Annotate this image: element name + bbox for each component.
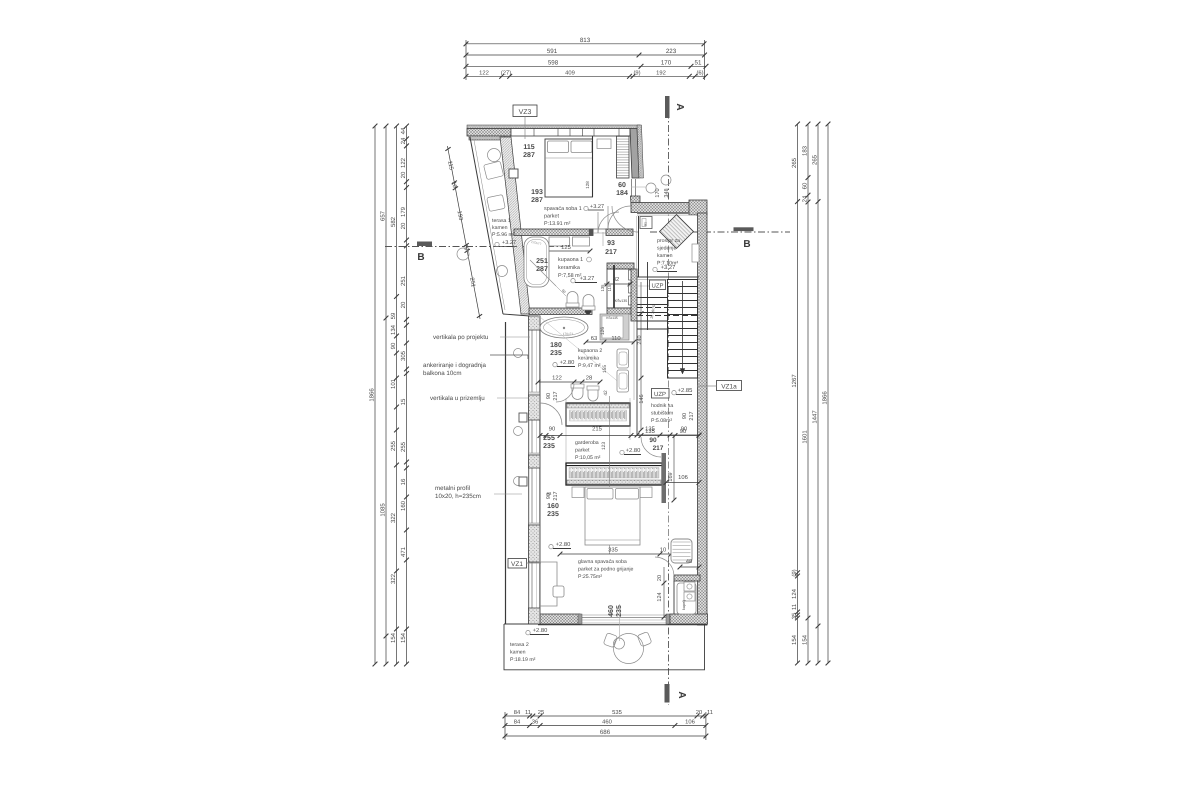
svg-text:63: 63 [591,335,597,342]
svg-text:B1: B1 [644,222,648,226]
svg-text:60: 60 [618,182,626,189]
svg-text:spavaća soba 1: spavaća soba 1 [544,206,582,212]
svg-text:90: 90 [681,426,687,433]
svg-text:126: 126 [600,327,606,335]
svg-text:106: 106 [685,719,695,726]
svg-text:1601: 1601 [801,430,808,444]
svg-text:335: 335 [608,547,618,554]
svg-text:VZ1a: VZ1a [721,383,737,390]
svg-text:+2.80: +2.80 [533,627,548,634]
svg-text:59: 59 [390,312,397,319]
svg-text:255: 255 [390,440,397,451]
svg-text:217: 217 [653,445,664,452]
svg-text:1447: 1447 [811,410,818,424]
svg-text:20: 20 [400,171,407,178]
svg-text:154: 154 [791,634,798,645]
svg-text:+2.80: +2.80 [560,359,575,366]
svg-text:parket: parket [575,448,590,454]
svg-text:184: 184 [616,190,628,197]
svg-text:20: 20 [400,301,407,308]
svg-text:UZP: UZP [652,282,664,289]
svg-text:124: 124 [657,592,663,601]
svg-text:217: 217 [553,491,559,500]
svg-text:251: 251 [400,275,407,286]
svg-text:471: 471 [400,546,407,557]
svg-text:kamen: kamen [492,225,508,231]
svg-text:51: 51 [695,60,702,67]
svg-text:122: 122 [400,157,407,168]
svg-text:kupaona 2: kupaona 2 [578,348,602,354]
svg-text:P:9,47 m²: P:9,47 m² [578,363,601,369]
svg-text:KŠv135: KŠv135 [615,298,628,303]
svg-text:124: 124 [791,588,798,599]
svg-text:+2.80: +2.80 [626,447,641,454]
svg-text:balkona 10cm: balkona 10cm [423,370,462,377]
svg-text:+2.80: +2.80 [556,541,571,548]
svg-text:metalni profil: metalni profil [435,485,470,492]
svg-text:hodnik sa: hodnik sa [651,403,673,409]
svg-text:409: 409 [565,70,575,77]
svg-text:154: 154 [390,632,397,643]
svg-text:ankeriranje i dogradnja: ankeriranje i dogradnja [423,362,487,369]
svg-text:B: B [417,252,424,263]
svg-text:192: 192 [656,70,666,77]
svg-text:322: 322 [390,512,397,523]
svg-text:235: 235 [547,511,559,518]
svg-text:115: 115 [523,144,534,151]
svg-text:90: 90 [390,342,397,349]
svg-text:90: 90 [546,393,552,399]
svg-text:160: 160 [547,503,559,510]
svg-text:217: 217 [553,391,559,400]
svg-text:A: A [674,103,685,110]
svg-text:(9): (9) [633,70,640,77]
svg-text:90: 90 [649,437,657,444]
svg-text:10: 10 [660,547,666,554]
svg-text:VZ1: VZ1 [511,561,523,568]
svg-text:44: 44 [400,127,407,134]
svg-text:+3.27: +3.27 [502,240,516,246]
svg-text:24: 24 [801,195,808,202]
svg-text:348: 348 [664,188,670,197]
svg-text:179: 179 [400,206,407,217]
svg-text:P:5.08m²: P:5.08m² [651,418,672,424]
svg-text:154: 154 [801,634,808,645]
svg-text:255: 255 [543,435,555,442]
svg-text:kamen: kamen [657,253,673,259]
svg-text:+3.27: +3.27 [580,275,595,282]
svg-text:460: 460 [608,605,615,617]
svg-text:170x71: 170x71 [563,332,574,336]
svg-text:+2.85: +2.85 [678,387,693,394]
svg-text:1866: 1866 [368,388,375,402]
svg-text:84: 84 [514,709,521,716]
svg-text:251: 251 [536,258,548,265]
svg-text:terasa 1: terasa 1 [492,218,511,224]
svg-text:keramika: keramika [558,265,580,271]
svg-text:10: 10 [462,243,470,251]
svg-text:217: 217 [689,411,695,420]
svg-text:kamen: kamen [510,650,526,656]
svg-text:terasa 2: terasa 2 [510,642,529,648]
svg-text:11: 11 [791,603,798,610]
svg-text:+3.27: +3.27 [661,264,676,271]
svg-text:20: 20 [696,709,702,716]
svg-text:193: 193 [531,189,543,196]
svg-text:93: 93 [547,491,552,496]
svg-text:48: 48 [686,559,692,565]
svg-text:vertikala u prizemlju: vertikala u prizemlju [430,395,485,402]
svg-text:90: 90 [549,426,555,433]
svg-text:535: 535 [612,709,622,716]
svg-text:223: 223 [666,48,677,55]
svg-text:160: 160 [400,500,407,511]
svg-text:598: 598 [548,60,559,67]
svg-text:123: 123 [601,442,607,450]
svg-text:11: 11 [525,710,531,716]
svg-text:169: 169 [668,472,674,481]
svg-text:287: 287 [523,152,535,159]
svg-text:134: 134 [390,324,397,335]
svg-text:235: 235 [543,443,555,450]
svg-text:P:10,05 m²: P:10,05 m² [575,455,601,461]
svg-text:UZP: UZP [654,391,666,398]
svg-text:265: 265 [811,154,818,165]
svg-text:240: 240 [637,335,643,344]
svg-text:16: 16 [400,478,407,485]
svg-text:kupaona 1: kupaona 1 [558,257,583,263]
svg-text:P:25.75m²: P:25.75m² [578,574,602,580]
svg-text:255: 255 [400,441,407,452]
svg-text:1267: 1267 [791,374,798,388]
svg-text:VZ3: VZ3 [519,109,532,116]
svg-text:(27): (27) [501,70,511,77]
svg-text:101: 101 [390,378,397,389]
svg-text:20: 20 [400,222,407,229]
svg-text:stubištem: stubištem [651,411,673,417]
svg-text:glavna spavaća soba: glavna spavaća soba [578,559,627,565]
svg-text:154: 154 [400,632,407,643]
svg-text:110: 110 [611,335,620,342]
svg-text:84: 84 [514,719,521,726]
svg-text:657: 657 [379,210,386,221]
svg-text:170: 170 [661,60,672,67]
svg-text:B: B [743,239,750,250]
svg-text:93: 93 [607,240,615,247]
svg-text:106: 106 [678,474,688,481]
svg-text:28: 28 [586,375,592,382]
svg-text:128: 128 [585,181,590,189]
svg-text:183: 183 [801,145,808,156]
svg-text:10: 10 [450,181,458,189]
svg-text:115: 115 [607,284,612,291]
svg-text:265: 265 [791,157,798,168]
svg-text:P:18.19 m²: P:18.19 m² [510,657,536,663]
svg-text:parket: parket [544,214,559,220]
svg-text:11: 11 [707,710,713,716]
svg-text:135: 135 [600,284,605,292]
svg-text:1085: 1085 [379,503,386,517]
svg-text:P:7,58 m²: P:7,58 m² [558,273,582,279]
svg-text:305: 305 [400,350,407,361]
svg-text:90: 90 [682,413,688,419]
svg-text:kupelj: kupelj [682,600,686,610]
svg-text:60: 60 [801,182,808,189]
svg-text:582: 582 [390,216,397,227]
svg-text:42: 42 [603,390,609,396]
svg-text:P:13.91 m²: P:13.91 m² [544,221,571,227]
svg-text:322: 322 [390,573,397,584]
svg-text:KŠx135: KŠx135 [606,316,618,320]
svg-text:125: 125 [561,244,571,251]
svg-text:180: 180 [550,342,562,349]
svg-text:217: 217 [605,249,617,256]
svg-text:155: 155 [602,365,608,373]
svg-text:591: 591 [547,48,558,55]
svg-text:146: 146 [639,394,645,403]
svg-text:35: 35 [791,612,798,619]
svg-text:686: 686 [600,729,611,736]
svg-text:(6): (6) [696,70,703,77]
svg-text:215: 215 [592,426,602,433]
svg-text:82: 82 [613,276,619,283]
svg-text:24: 24 [400,137,407,144]
svg-text:1866: 1866 [821,391,828,405]
svg-text:460: 460 [602,719,612,726]
svg-text:15: 15 [400,398,407,405]
svg-text:10x20, h=235cm: 10x20, h=235cm [435,493,481,500]
svg-text:sjedenje: sjedenje [657,246,676,252]
svg-text:235: 235 [550,350,562,357]
svg-text:122: 122 [479,70,489,77]
svg-text:25: 25 [538,709,544,716]
svg-text:parket za podno grijanje: parket za podno grijanje [578,567,633,573]
svg-text:813: 813 [580,37,591,44]
svg-text:garderoba: garderoba [575,440,599,446]
svg-text:36: 36 [532,719,538,726]
svg-text:287: 287 [531,197,543,204]
svg-text:135: 135 [645,426,655,433]
svg-text:20: 20 [657,575,663,581]
svg-text:122: 122 [552,375,562,382]
svg-text:prostor za: prostor za [657,238,680,244]
svg-text:(9): (9) [791,569,798,576]
svg-text:A: A [676,691,687,698]
svg-text:+3.27: +3.27 [590,204,604,210]
svg-text:vertikala po projektu: vertikala po projektu [433,334,489,341]
svg-text:P:5.96 m²: P:5.96 m² [492,232,515,238]
svg-text:keramika: keramika [578,356,599,362]
